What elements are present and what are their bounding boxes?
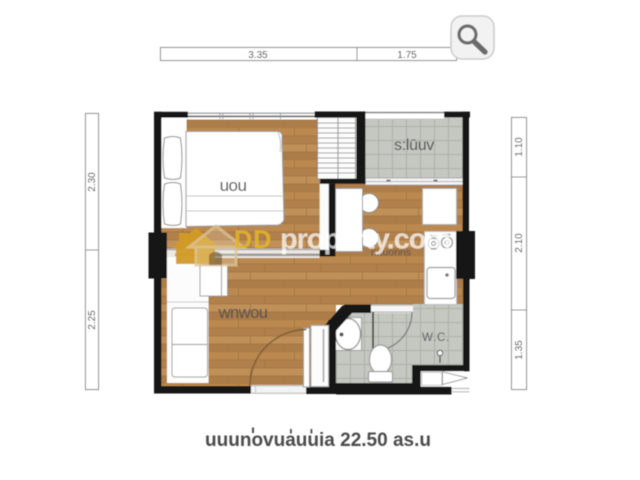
svg-text:1.75: 1.75 [397,50,417,61]
svg-text:DD: DD [234,226,273,254]
svg-text:property.com: property.com [280,224,450,256]
svg-text:2.10: 2.10 [514,233,525,253]
svg-text:W.C.: W.C. [422,332,450,344]
svg-text:2.30: 2.30 [87,172,98,192]
svg-text:s:lūuv: s:lūuv [394,137,434,154]
svg-text:2.25: 2.25 [87,310,98,330]
svg-text:uuunovuauuia 22.50 as.u: uuunovuauuia 22.50 as.u [205,430,431,451]
svg-text:uou: uou [220,176,247,195]
svg-text:3.35: 3.35 [248,50,268,61]
svg-text:1.35: 1.35 [514,340,525,360]
svg-text:wnwou: wnwou [218,304,268,322]
svg-text:1.10: 1.10 [514,137,525,157]
